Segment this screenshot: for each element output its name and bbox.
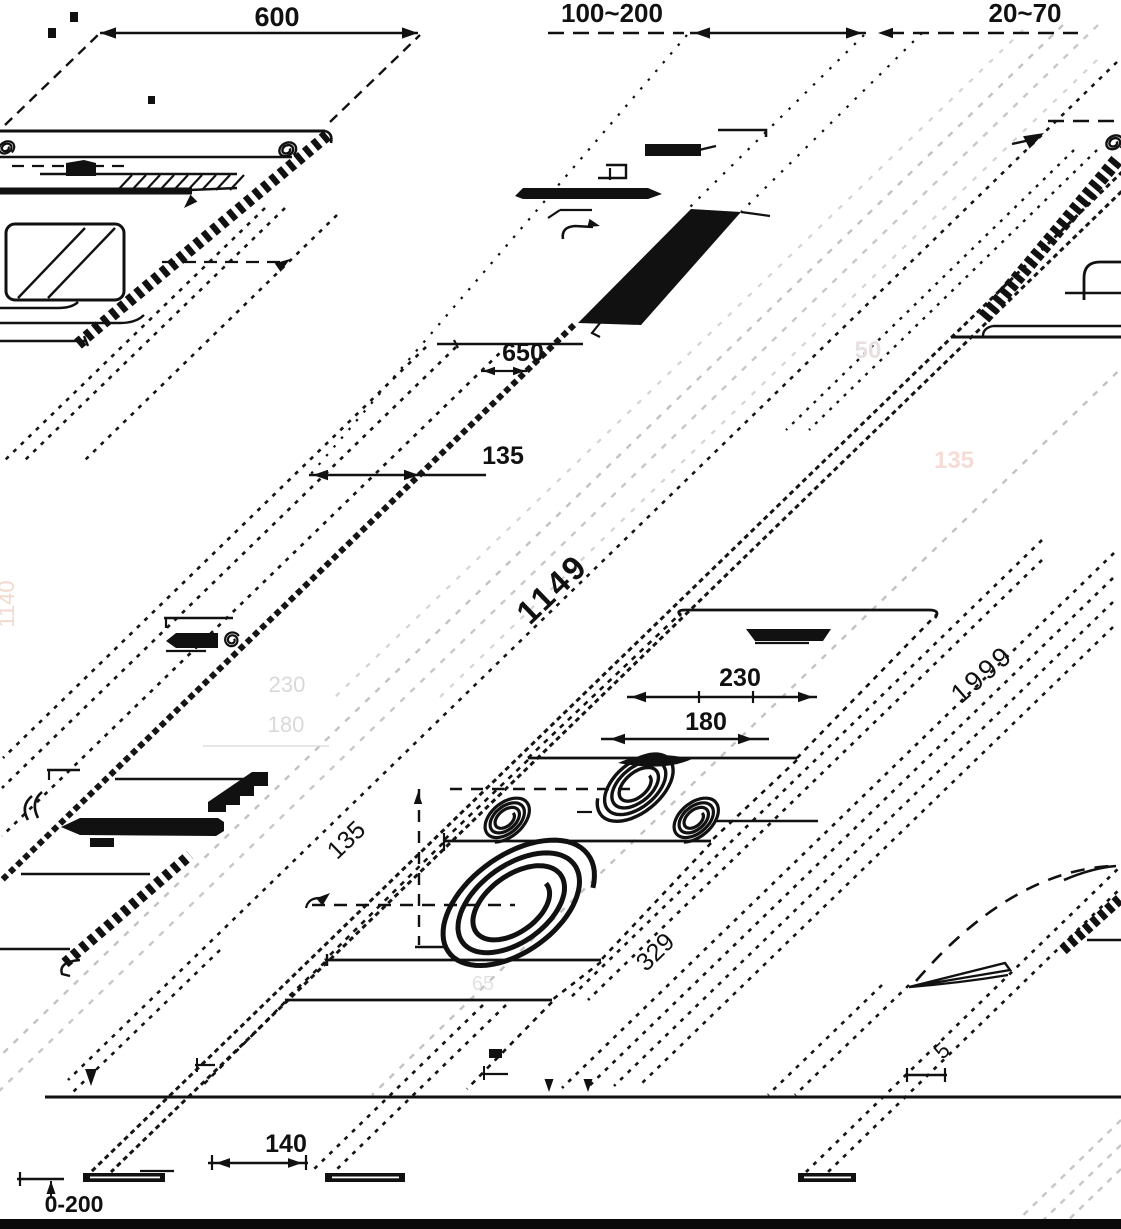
svg-text:0-200: 0-200 xyxy=(45,1191,104,1217)
svg-text:180: 180 xyxy=(268,712,305,737)
svg-text:135: 135 xyxy=(934,447,974,474)
svg-text:650: 650 xyxy=(502,339,544,367)
svg-text:230: 230 xyxy=(269,672,306,697)
svg-text:65: 65 xyxy=(472,973,494,995)
svg-text:600: 600 xyxy=(254,2,299,32)
svg-text:230: 230 xyxy=(719,664,761,692)
svg-text:180: 180 xyxy=(685,708,727,736)
svg-text:100~200: 100~200 xyxy=(561,0,663,28)
svg-text:140: 140 xyxy=(265,1130,307,1158)
svg-text:50: 50 xyxy=(855,337,882,364)
svg-text:1140: 1140 xyxy=(0,580,19,627)
svg-text:20~70: 20~70 xyxy=(988,0,1061,28)
svg-text:135: 135 xyxy=(482,442,524,470)
